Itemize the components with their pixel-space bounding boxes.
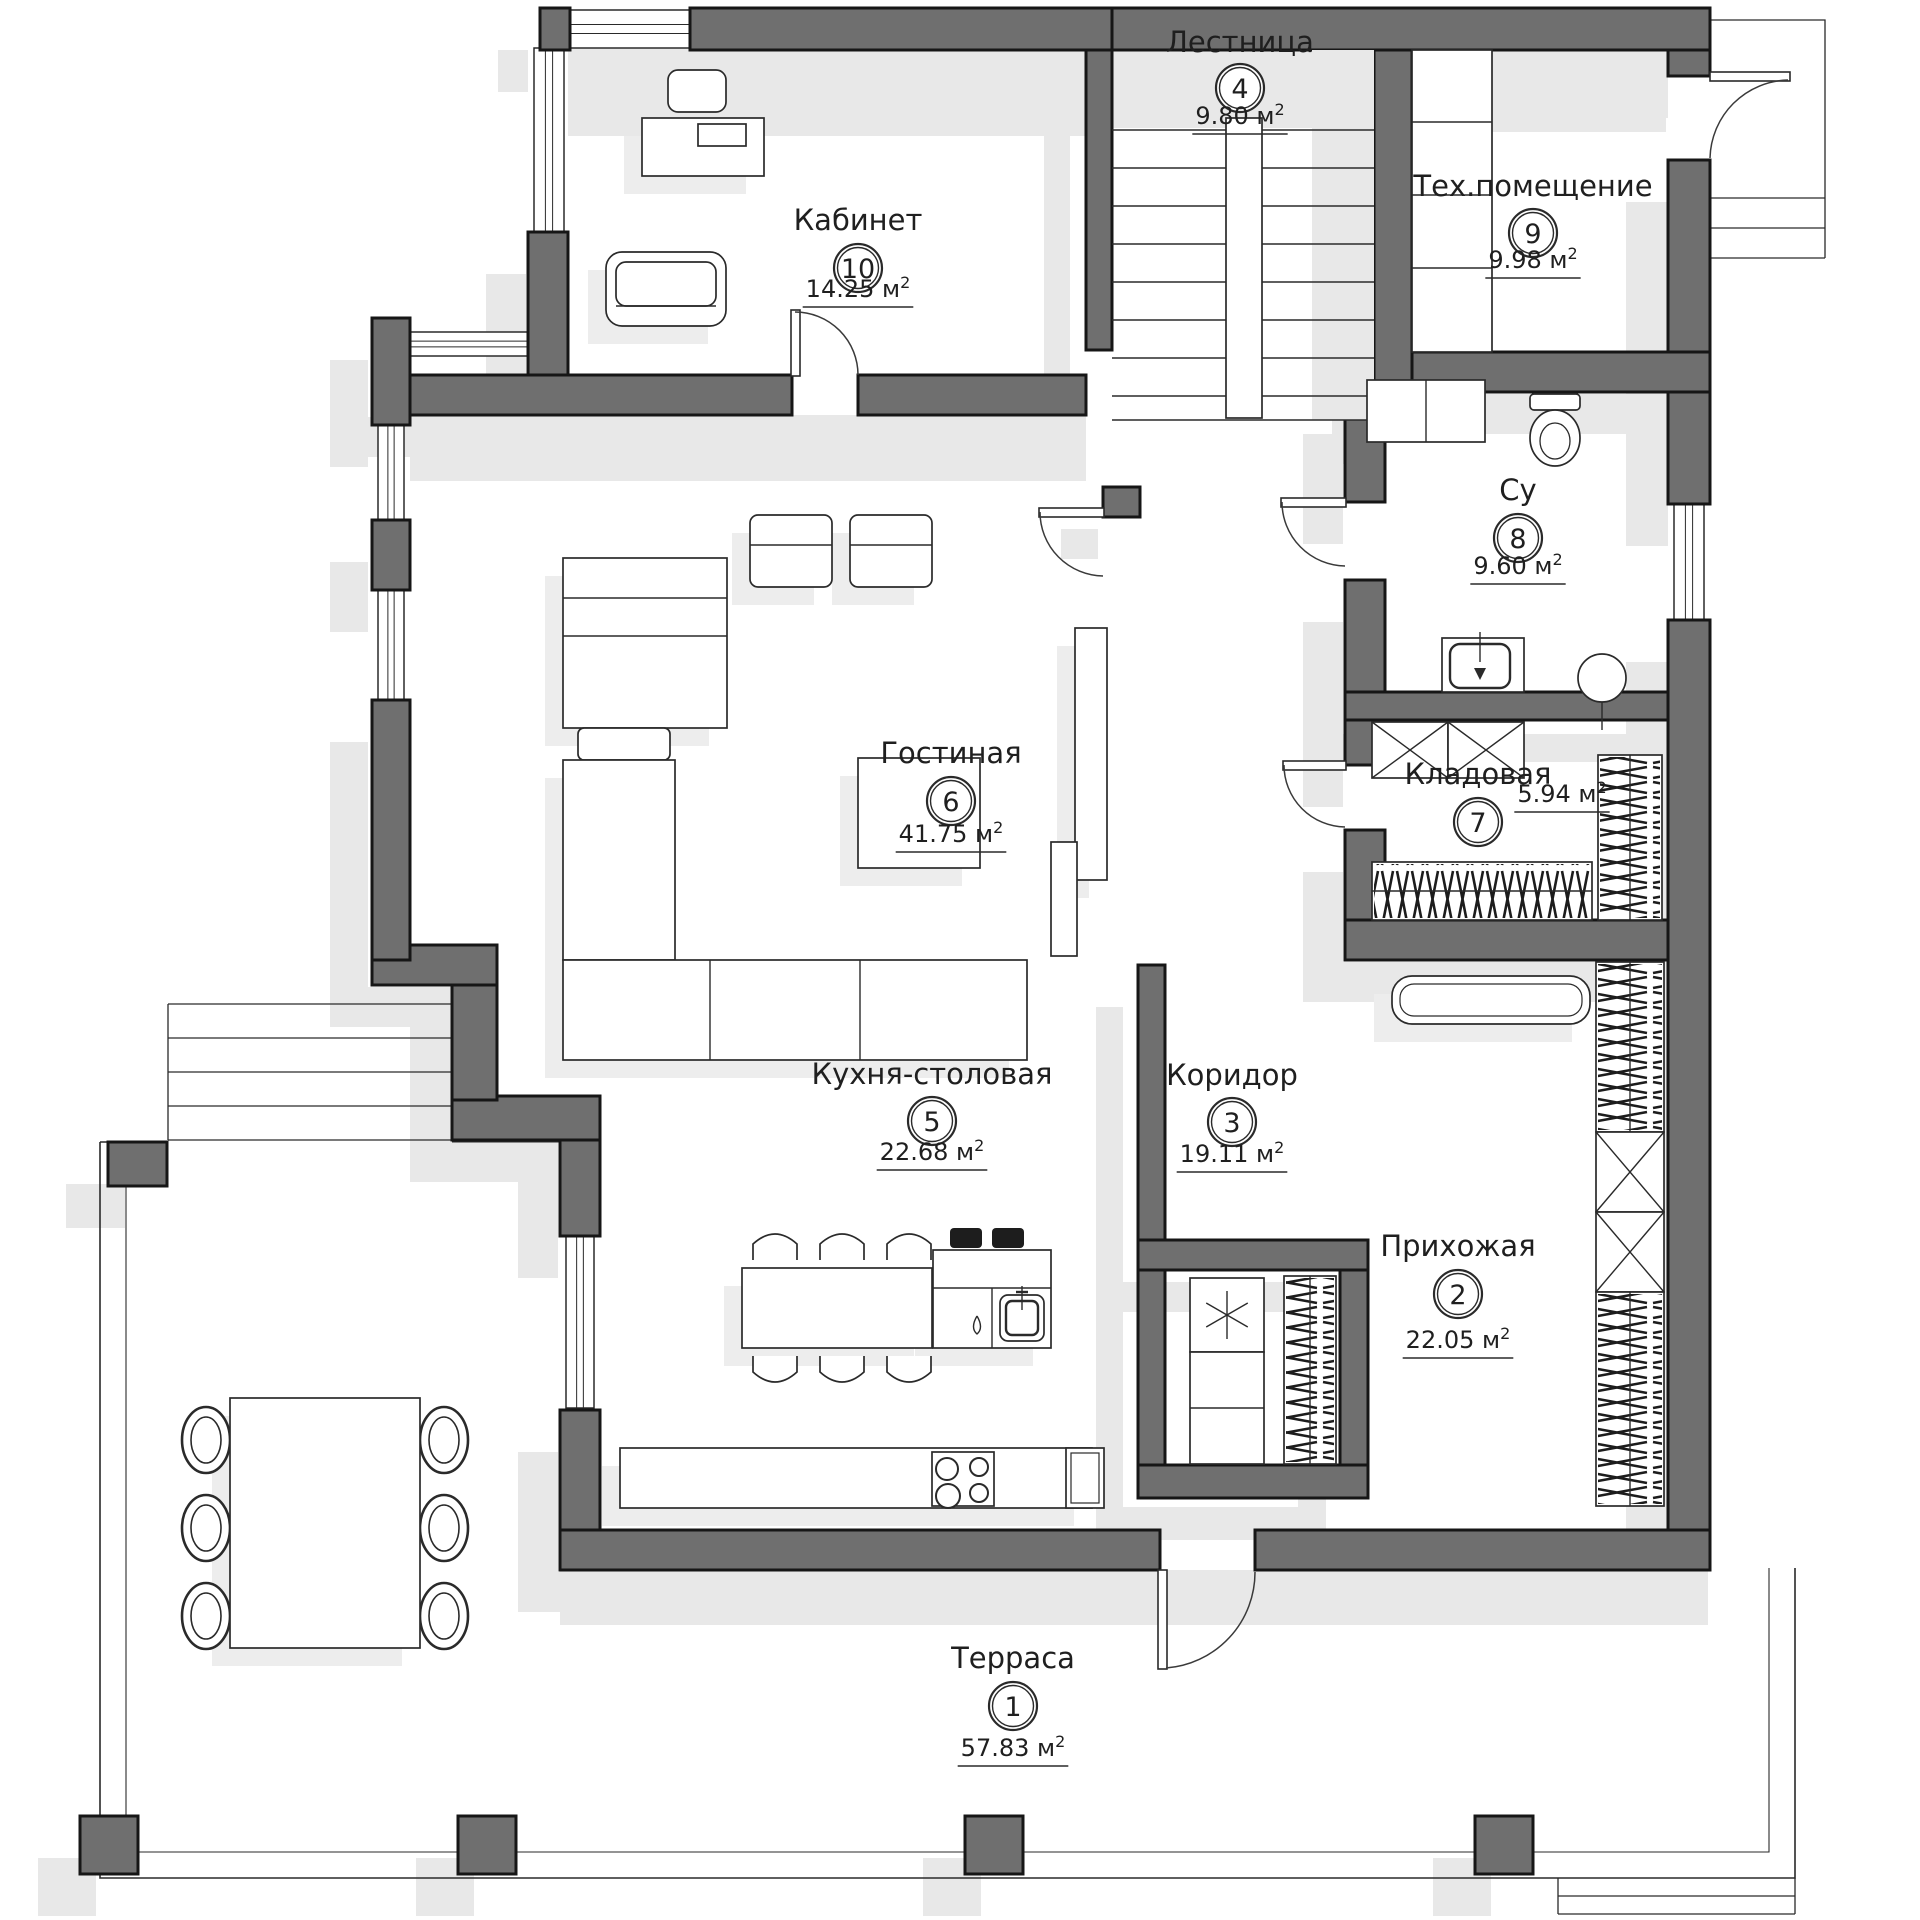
room-area: 9.80 м2 <box>1195 100 1284 130</box>
stair-stringer <box>1226 118 1262 418</box>
dining-chair <box>820 1234 864 1260</box>
tv-console <box>1051 842 1077 956</box>
room-area: 19.11 м2 <box>1180 1138 1285 1168</box>
door-leaf <box>791 310 800 376</box>
floor-lamp <box>1578 654 1626 702</box>
toilet-tank <box>1530 394 1580 410</box>
room-area: 22.68 м2 <box>880 1136 985 1166</box>
room-name: Коридор <box>1166 1058 1298 1092</box>
sofa-armrest <box>578 728 670 760</box>
room-label-2: Прихожая222.05 м2 <box>1380 1229 1535 1358</box>
room-number: 2 <box>1449 1280 1466 1311</box>
armchair <box>850 515 932 587</box>
room-name: Терраса <box>950 1641 1075 1675</box>
room-area: 22.05 м2 <box>1406 1324 1511 1354</box>
room-number: 3 <box>1223 1108 1240 1139</box>
room-name: Кабинет <box>794 203 923 237</box>
door-leaf <box>1710 72 1790 81</box>
room-number: 7 <box>1469 808 1486 839</box>
dining-chair <box>820 1356 864 1382</box>
dining-chair <box>753 1234 797 1260</box>
sofa-left <box>563 760 675 960</box>
floor-plan-canvas: Терраса157.83 м2Прихожая222.05 м2Коридор… <box>0 0 1920 1920</box>
room-area: 9.60 м2 <box>1473 550 1562 580</box>
room-name: Лестница <box>1166 25 1314 59</box>
door-leaf <box>1283 761 1346 770</box>
door-leaf <box>1158 1570 1167 1669</box>
bar-stool <box>992 1228 1024 1248</box>
office-chair <box>668 70 726 112</box>
room-label-10: Кабинет1014.25 м2 <box>794 203 923 307</box>
room-number: 5 <box>923 1107 940 1138</box>
room-name: Гостиная <box>880 736 1021 770</box>
kitchen-counter <box>620 1448 1092 1508</box>
room-area: 9.98 м2 <box>1488 244 1577 274</box>
dining-chair <box>887 1356 931 1382</box>
room-area: 41.75 м2 <box>899 818 1004 848</box>
room-name: Кухня-столовая <box>812 1057 1053 1091</box>
dining-chair <box>887 1234 931 1260</box>
room-number: 8 <box>1509 524 1526 555</box>
room-label-1: Терраса157.83 м2 <box>950 1641 1075 1766</box>
door-leaf <box>1281 498 1346 507</box>
room-number: 4 <box>1231 74 1248 105</box>
sofa-chaise <box>563 558 727 728</box>
room-area: 57.83 м2 <box>961 1732 1066 1762</box>
room-area: 5.94 м2 <box>1517 778 1606 808</box>
room-name: Тех.помещение <box>1412 169 1652 203</box>
room-number: 1 <box>1004 1692 1021 1723</box>
room-area: 14.25 м2 <box>806 273 911 303</box>
room-number: 6 <box>942 787 959 818</box>
bar-stool <box>950 1228 982 1248</box>
room-label-3: Коридор319.11 м2 <box>1166 1058 1298 1172</box>
sofa-bottom <box>563 960 1027 1060</box>
dining-table <box>742 1268 932 1348</box>
dining-chair <box>753 1356 797 1382</box>
door-leaf <box>1039 508 1104 517</box>
room-label-7: Кладовая75.94 м2 <box>1405 757 1610 846</box>
room-label-8: Су89.60 м2 <box>1470 473 1565 584</box>
office-monitor <box>698 124 746 146</box>
armchair <box>750 515 832 587</box>
room-name: Прихожая <box>1380 1229 1535 1263</box>
room-name: Су <box>1499 473 1536 507</box>
tv-panel <box>1075 628 1107 880</box>
terrace-table <box>230 1398 420 1648</box>
office-loveseat-back <box>616 262 716 306</box>
room-label-5: Кухня-столовая522.68 м2 <box>812 1057 1053 1170</box>
